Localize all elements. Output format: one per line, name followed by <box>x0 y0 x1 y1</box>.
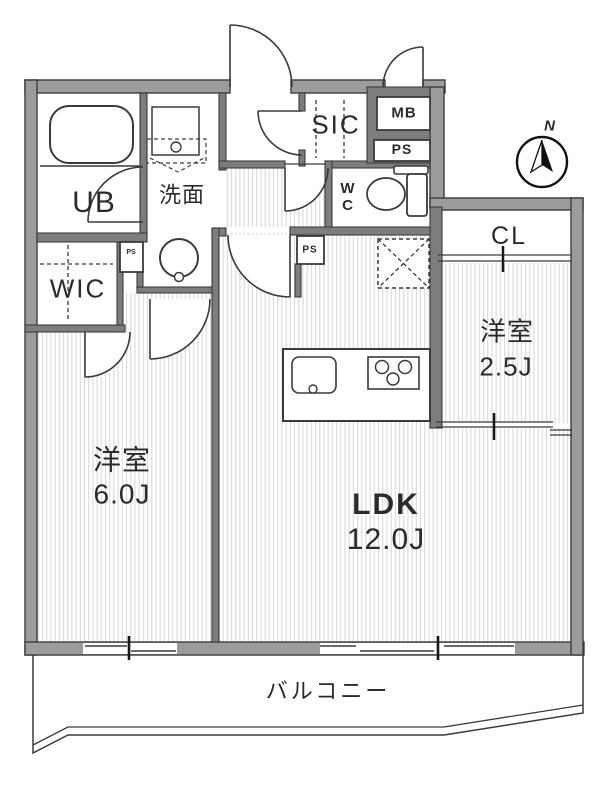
label-bedroom-small-size: 2.5J <box>479 352 532 381</box>
label-walk-in-closet: WIC <box>50 274 107 303</box>
floor-ldk-right <box>429 428 571 642</box>
label-pipe-space-entry: PS <box>392 142 413 158</box>
label-compass-north: N <box>544 119 556 136</box>
label-meter-box: MB <box>391 106 416 123</box>
label-ldk-size: 12.0J <box>347 523 425 557</box>
room-entrance <box>226 93 299 161</box>
label-ldk-name: LDK <box>352 488 420 522</box>
label-pipe-space-wic: PS <box>126 249 135 257</box>
label-balcony: バルコニー <box>266 680 391 705</box>
floor-plan-page: UB 洗面 WIC SIC MB PS PS PS W C CL 洋室 6.0J… <box>0 0 604 800</box>
pipe-space-wic-box <box>120 242 143 272</box>
floor-ldk <box>219 233 429 642</box>
refrigerator-space-icon <box>378 239 429 288</box>
label-closet: CL <box>491 222 527 250</box>
label-toilet: W C <box>340 180 355 215</box>
meter-box-door <box>383 47 423 87</box>
label-shoe-closet: SIC <box>311 110 360 139</box>
kitchen-counter-icon <box>283 349 430 421</box>
bathtub-icon <box>50 106 133 163</box>
label-pipe-space-hall: PS <box>302 244 317 255</box>
label-washroom: 洗面 <box>159 184 205 209</box>
label-unit-bath: UB <box>72 186 116 220</box>
entrance-door <box>230 25 292 87</box>
label-bedroom-main-size: 6.0J <box>94 478 151 509</box>
room-washroom-strip <box>212 93 219 170</box>
compass-icon <box>517 137 567 187</box>
label-bedroom-small-name: 洋室 <box>480 317 534 346</box>
label-bedroom-main-name: 洋室 <box>93 444 151 475</box>
